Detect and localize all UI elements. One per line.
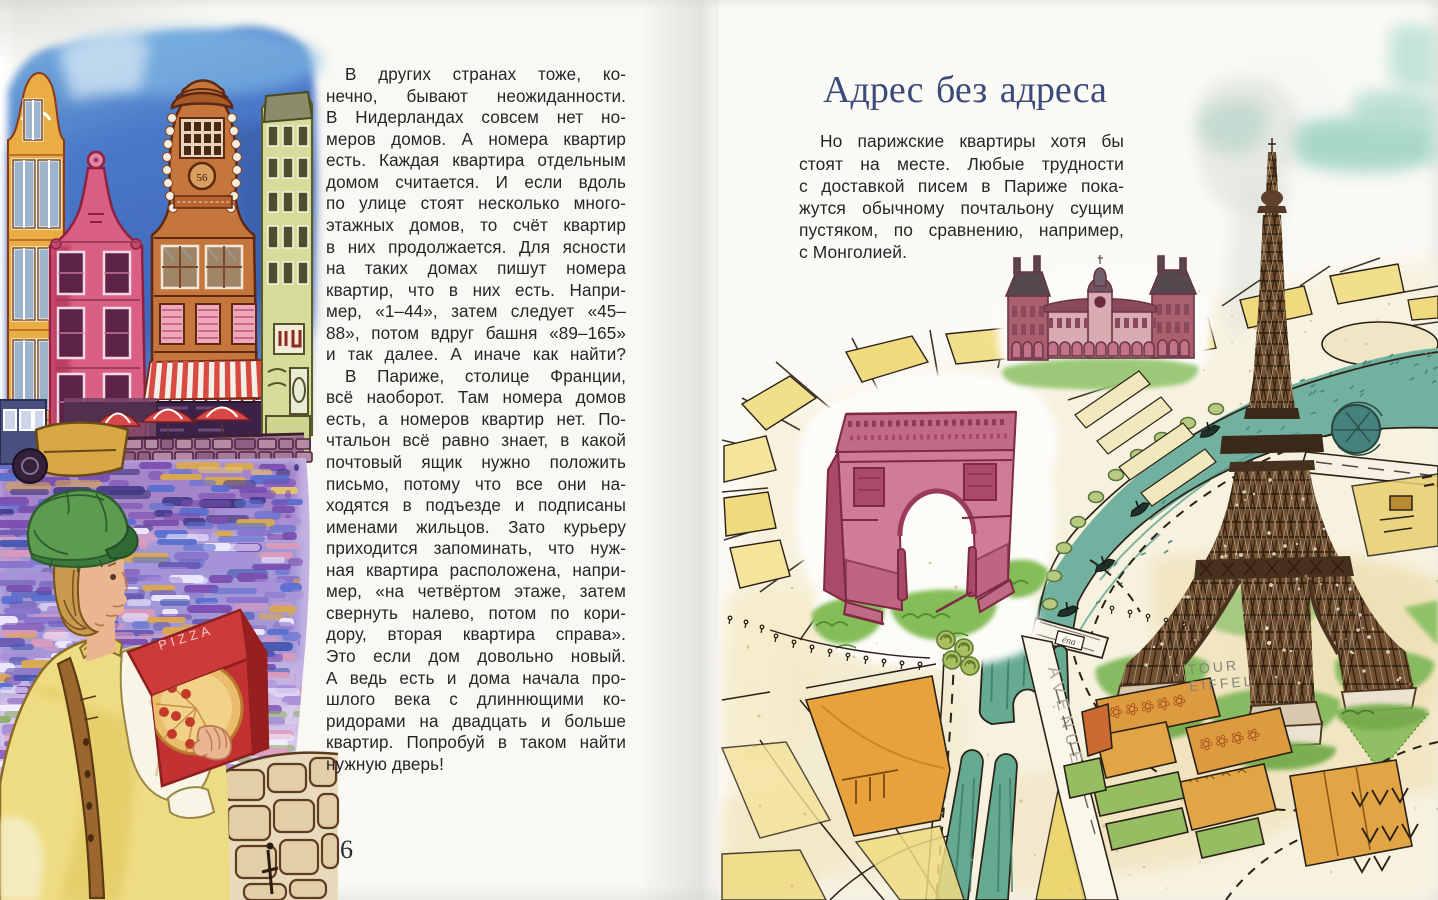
svg-text:56: 56 xyxy=(197,172,209,184)
